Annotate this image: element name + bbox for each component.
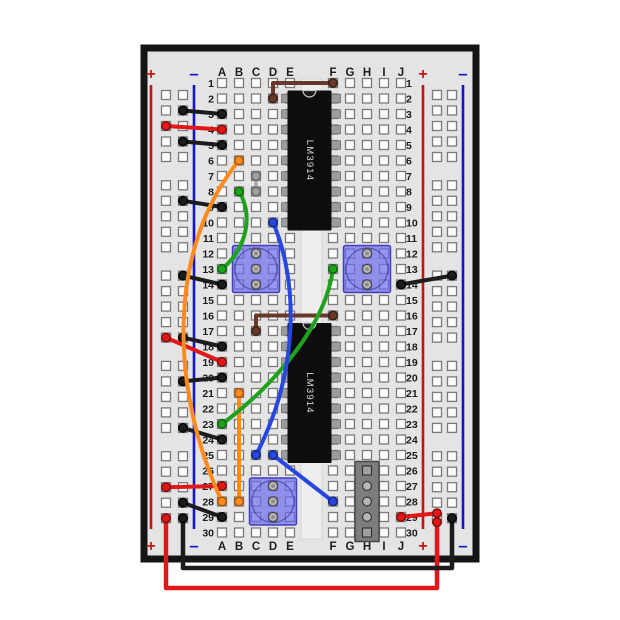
row-number-right: 13: [406, 264, 418, 276]
wire-red-lrail-a27-endpoint: [162, 483, 171, 492]
hole: [179, 212, 188, 221]
column-letter-bottom: C: [252, 541, 260, 553]
column-letter-top: I: [382, 67, 385, 79]
hole: [346, 466, 355, 475]
hole: [397, 203, 406, 212]
hole: [179, 227, 188, 236]
row-number-right: 15: [406, 295, 418, 307]
hole: [329, 296, 338, 305]
hole: [448, 361, 457, 370]
hole: [448, 243, 457, 252]
minus-sign: –: [458, 64, 467, 83]
hole: [218, 249, 227, 258]
hole: [218, 327, 227, 336]
row-number-right: 10: [406, 217, 418, 229]
wire-orange-b21-b28-endpoint: [235, 389, 244, 398]
column-letter-top: F: [329, 67, 336, 79]
hole: [235, 327, 244, 336]
wire-black-external-endpoint: [179, 514, 188, 523]
row-number-right: 6: [406, 155, 412, 167]
hole: [363, 156, 372, 165]
row-number-left: 16: [202, 310, 214, 322]
hole: [397, 389, 406, 398]
hole: [162, 106, 171, 115]
wire-black-lrail-a29-endpoint: [218, 513, 227, 522]
hole: [448, 302, 457, 311]
hole: [269, 327, 278, 336]
trimpot-right-pin-center: [365, 267, 369, 271]
hole: [397, 265, 406, 274]
trimpot-right-pin-center: [365, 252, 369, 256]
hole: [162, 212, 171, 221]
row-number-left: 21: [202, 388, 214, 400]
hole: [346, 404, 355, 413]
hole: [162, 467, 171, 476]
wire-brown-c17-f16-endpoint: [329, 311, 338, 320]
hole: [269, 156, 278, 165]
row-number-right: 2: [406, 93, 412, 105]
hole: [397, 125, 406, 134]
row-number-left: 28: [202, 496, 214, 508]
hole: [380, 187, 389, 196]
hole: [218, 218, 227, 227]
hole: [448, 452, 457, 461]
hole: [433, 483, 442, 492]
wire-black-lrail-a5-endpoint: [218, 141, 227, 150]
hole: [363, 451, 372, 460]
wire-orange-b21-b28-endpoint: [235, 497, 244, 506]
hole: [329, 234, 338, 243]
wire-orange-b6-a28-endpoint: [218, 497, 227, 506]
plus-sign: +: [146, 66, 155, 83]
wire-black-external-endpoint: [448, 514, 457, 523]
hole: [380, 218, 389, 227]
hole: [433, 498, 442, 507]
hole: [448, 212, 457, 221]
minus-sign: –: [189, 64, 198, 83]
column-letter-top: C: [252, 67, 260, 79]
hole: [235, 513, 244, 522]
hole: [269, 110, 278, 119]
hole: [380, 110, 389, 119]
hole: [218, 234, 227, 243]
row-number-right: 19: [406, 357, 418, 369]
hole: [162, 91, 171, 100]
hole: [329, 513, 338, 522]
hole: [363, 420, 372, 429]
hole: [363, 218, 372, 227]
hole: [162, 377, 171, 386]
hole: [218, 466, 227, 475]
hole: [329, 466, 338, 475]
hole: [162, 227, 171, 236]
row-number-right: 7: [406, 171, 412, 183]
hole: [346, 156, 355, 165]
hole: [433, 137, 442, 146]
hole: [162, 392, 171, 401]
hole: [346, 311, 355, 320]
wire-black-lrail-a20-endpoint: [218, 373, 227, 382]
hole: [363, 358, 372, 367]
hole: [433, 361, 442, 370]
wire-green-f13-a23-endpoint: [329, 265, 338, 274]
hole: [433, 302, 442, 311]
wire-green-b8-a13-endpoint: [218, 265, 227, 274]
row-number-left: 6: [208, 155, 214, 167]
hole: [363, 110, 372, 119]
hole: [433, 227, 442, 236]
hole: [433, 153, 442, 162]
hole: [235, 358, 244, 367]
row-number-right: 17: [406, 326, 418, 338]
hole: [380, 404, 389, 413]
hole: [448, 333, 457, 342]
hole: [179, 452, 188, 461]
wire-red-external-endpoint: [162, 514, 171, 523]
hole: [218, 451, 227, 460]
hole: [380, 466, 389, 475]
hole: [179, 467, 188, 476]
hole: [269, 342, 278, 351]
hole: [380, 482, 389, 491]
wire-green-f13-a23-endpoint: [218, 420, 227, 429]
hole: [162, 137, 171, 146]
hole: [397, 156, 406, 165]
trimpot-bottom: [250, 478, 297, 525]
hole: [363, 234, 372, 243]
hole: [380, 156, 389, 165]
hole: [397, 94, 406, 103]
hole: [269, 187, 278, 196]
header-5pin-pin: [363, 482, 372, 491]
hole: [397, 404, 406, 413]
hole: [363, 172, 372, 181]
hole: [433, 408, 442, 417]
hole: [346, 172, 355, 181]
hole: [363, 79, 372, 88]
wire-blue-d10-c25-endpoint: [269, 218, 278, 227]
hole: [448, 423, 457, 432]
hole: [346, 435, 355, 444]
header-5pin-pin: [363, 497, 372, 506]
hole: [397, 79, 406, 88]
hole: [363, 141, 372, 150]
hole: [162, 287, 171, 296]
hole: [397, 466, 406, 475]
hole: [252, 156, 261, 165]
hole: [380, 141, 389, 150]
hole: [448, 498, 457, 507]
minus-sign: –: [458, 536, 467, 555]
column-letter-bottom: B: [235, 541, 243, 553]
hole: [433, 122, 442, 131]
row-number-left: 11: [203, 233, 214, 245]
hole: [448, 153, 457, 162]
wire-orange-b6-a28-endpoint: [235, 156, 244, 165]
hole: [448, 227, 457, 236]
row-number-right: 24: [406, 434, 418, 446]
hole: [363, 342, 372, 351]
hole: [433, 392, 442, 401]
wire-black-lrail-a9-endpoint: [179, 197, 188, 206]
hole: [235, 373, 244, 382]
hole: [346, 497, 355, 506]
wire-black-lrail-a3-endpoint: [179, 106, 188, 115]
column-letter-top: A: [218, 67, 226, 79]
row-number-right: 9: [406, 202, 412, 214]
trimpot-right: [344, 246, 391, 293]
wire-black-lrail-a24-endpoint: [218, 435, 227, 444]
hole: [346, 358, 355, 367]
hole: [179, 392, 188, 401]
hole: [346, 110, 355, 119]
hole: [235, 125, 244, 134]
row-number-left: 13: [202, 264, 214, 276]
row-number-right: 20: [406, 372, 418, 384]
column-letter-top: G: [346, 67, 355, 79]
hole: [433, 452, 442, 461]
wire-black-j14-rrail-endpoint: [397, 280, 406, 289]
hole: [162, 423, 171, 432]
hole: [363, 125, 372, 134]
wire-red-external-endpoint: [433, 518, 442, 527]
hole: [363, 311, 372, 320]
hole: [397, 218, 406, 227]
hole: [363, 94, 372, 103]
wire-black-lrail-a29-endpoint: [179, 498, 188, 507]
hole: [448, 483, 457, 492]
hole: [235, 311, 244, 320]
hole: [448, 91, 457, 100]
wire-red-lrail-a4-endpoint: [218, 125, 227, 134]
hole: [346, 451, 355, 460]
row-number-right: 18: [406, 341, 418, 353]
column-letter-bottom: A: [218, 541, 226, 553]
hole: [252, 79, 261, 88]
hole: [252, 404, 261, 413]
hole: [433, 467, 442, 476]
column-letter-bottom: J: [398, 541, 404, 553]
hole: [380, 327, 389, 336]
hole: [380, 435, 389, 444]
hole: [433, 423, 442, 432]
column-letter-top: H: [363, 67, 371, 79]
hole: [363, 404, 372, 413]
trimpot-right-pin-center: [365, 283, 369, 287]
trimpot-bottom-pin-center: [271, 484, 275, 488]
hole: [252, 358, 261, 367]
wire-red-j29-rrail-endpoint: [397, 513, 406, 522]
hole: [346, 218, 355, 227]
column-letter-bottom: I: [382, 541, 385, 553]
row-number-left: 2: [208, 93, 214, 105]
hole: [380, 125, 389, 134]
hole: [329, 528, 338, 537]
hole: [252, 110, 261, 119]
hole: [162, 498, 171, 507]
minus-sign: –: [189, 536, 198, 555]
column-letter-bottom: E: [286, 541, 294, 553]
hole: [329, 249, 338, 258]
hole: [218, 404, 227, 413]
hole: [448, 408, 457, 417]
trimpot-left: [233, 246, 280, 293]
trimpot-left-pin-center: [254, 252, 258, 256]
hole: [179, 243, 188, 252]
hole: [433, 106, 442, 115]
hole: [269, 358, 278, 367]
hole: [363, 203, 372, 212]
hole: [448, 392, 457, 401]
hole: [448, 122, 457, 131]
hole: [162, 318, 171, 327]
plus-sign: +: [418, 538, 427, 555]
hole: [346, 296, 355, 305]
wire-black-lrail-a24-endpoint: [179, 424, 188, 433]
hole: [162, 153, 171, 162]
hole: [448, 467, 457, 476]
hole: [252, 234, 261, 243]
hole: [433, 333, 442, 342]
hole: [433, 243, 442, 252]
row-number-right: 16: [406, 310, 418, 322]
hole: [397, 342, 406, 351]
hole: [235, 296, 244, 305]
hole: [363, 296, 372, 305]
column-letter-bottom: F: [329, 541, 336, 553]
wire-gray-c7-c8-endpoint: [252, 187, 261, 196]
hole: [397, 187, 406, 196]
wire-brown-c17-f16-endpoint: [252, 327, 261, 336]
header-5pin-pin: [363, 513, 372, 522]
wire-red-lrail-a19-endpoint: [218, 358, 227, 367]
row-number-right: 1: [406, 78, 412, 90]
hole: [397, 528, 406, 537]
hole: [346, 389, 355, 398]
row-number-left: 23: [202, 419, 214, 431]
hole: [162, 196, 171, 205]
row-number-right: 5: [406, 140, 412, 152]
plus-sign: +: [418, 66, 427, 83]
column-letter-bottom: H: [363, 541, 371, 553]
hole: [397, 296, 406, 305]
row-number-right: 25: [406, 450, 418, 462]
wire-black-lrail-a14-endpoint: [218, 280, 227, 289]
hole: [162, 302, 171, 311]
hole: [346, 234, 355, 243]
hole: [433, 318, 442, 327]
row-number-right: 22: [406, 403, 418, 415]
hole: [346, 482, 355, 491]
row-number-left: 7: [208, 171, 214, 183]
wire-blue-d25-f28-endpoint: [269, 451, 278, 460]
row-number-right: 27: [406, 481, 418, 493]
row-number-right: 21: [406, 388, 418, 400]
row-number-left: 30: [202, 527, 214, 539]
hole: [397, 110, 406, 119]
hole: [380, 513, 389, 522]
hole: [252, 420, 261, 429]
header-5pin: [355, 462, 379, 542]
hole: [179, 181, 188, 190]
hole: [162, 271, 171, 280]
hole: [346, 125, 355, 134]
column-letter-top: J: [398, 67, 404, 79]
hole: [218, 79, 227, 88]
hole: [235, 172, 244, 181]
hole: [235, 203, 244, 212]
hole: [397, 435, 406, 444]
wire-red-lrail-a19-endpoint: [162, 333, 171, 342]
wire-black-lrail-a5-endpoint: [179, 137, 188, 146]
hole: [346, 327, 355, 336]
hole: [252, 528, 261, 537]
row-number-right: 11: [406, 233, 417, 245]
column-letter-bottom: D: [269, 541, 277, 553]
column-letter-top: B: [235, 67, 243, 79]
hole: [346, 513, 355, 522]
hole: [218, 528, 227, 537]
hole: [252, 373, 261, 382]
hole: [346, 141, 355, 150]
plus-sign: +: [146, 538, 155, 555]
hole: [380, 311, 389, 320]
hole: [397, 420, 406, 429]
wire-gray-c7-c8-endpoint: [252, 172, 261, 181]
hole: [235, 342, 244, 351]
hole: [397, 249, 406, 258]
breadboard-diagram: AABBCCDDEEFFGGHHIIJJ11223344556677889910…: [0, 0, 620, 620]
hole: [252, 125, 261, 134]
hole: [235, 110, 244, 119]
hole: [380, 342, 389, 351]
hole: [269, 172, 278, 181]
hole: [269, 203, 278, 212]
hole: [286, 528, 295, 537]
hole: [448, 137, 457, 146]
hole: [235, 528, 244, 537]
wire-red-lrail-a4-endpoint: [162, 122, 171, 131]
hole: [397, 172, 406, 181]
hole: [235, 94, 244, 103]
hole: [252, 435, 261, 444]
hole: [448, 287, 457, 296]
hole: [433, 212, 442, 221]
trimpot-left-pin-center: [254, 283, 258, 287]
hole: [269, 141, 278, 150]
hole: [269, 466, 278, 475]
hole: [346, 79, 355, 88]
hole: [235, 79, 244, 88]
hole: [218, 389, 227, 398]
header-5pin-pin: [363, 466, 372, 475]
hole: [346, 94, 355, 103]
row-number-right: 28: [406, 496, 418, 508]
hole: [269, 389, 278, 398]
ic-lm3914-bottom-label: LM3914: [304, 372, 315, 414]
hole: [346, 373, 355, 382]
hole: [433, 196, 442, 205]
hole: [346, 203, 355, 212]
hole: [380, 389, 389, 398]
hole: [269, 435, 278, 444]
wire-brown-d2-f1-endpoint: [269, 94, 278, 103]
hole: [235, 218, 244, 227]
hole: [380, 94, 389, 103]
hole: [397, 358, 406, 367]
trimpot-left-pin-center: [254, 267, 258, 271]
hole: [286, 234, 295, 243]
